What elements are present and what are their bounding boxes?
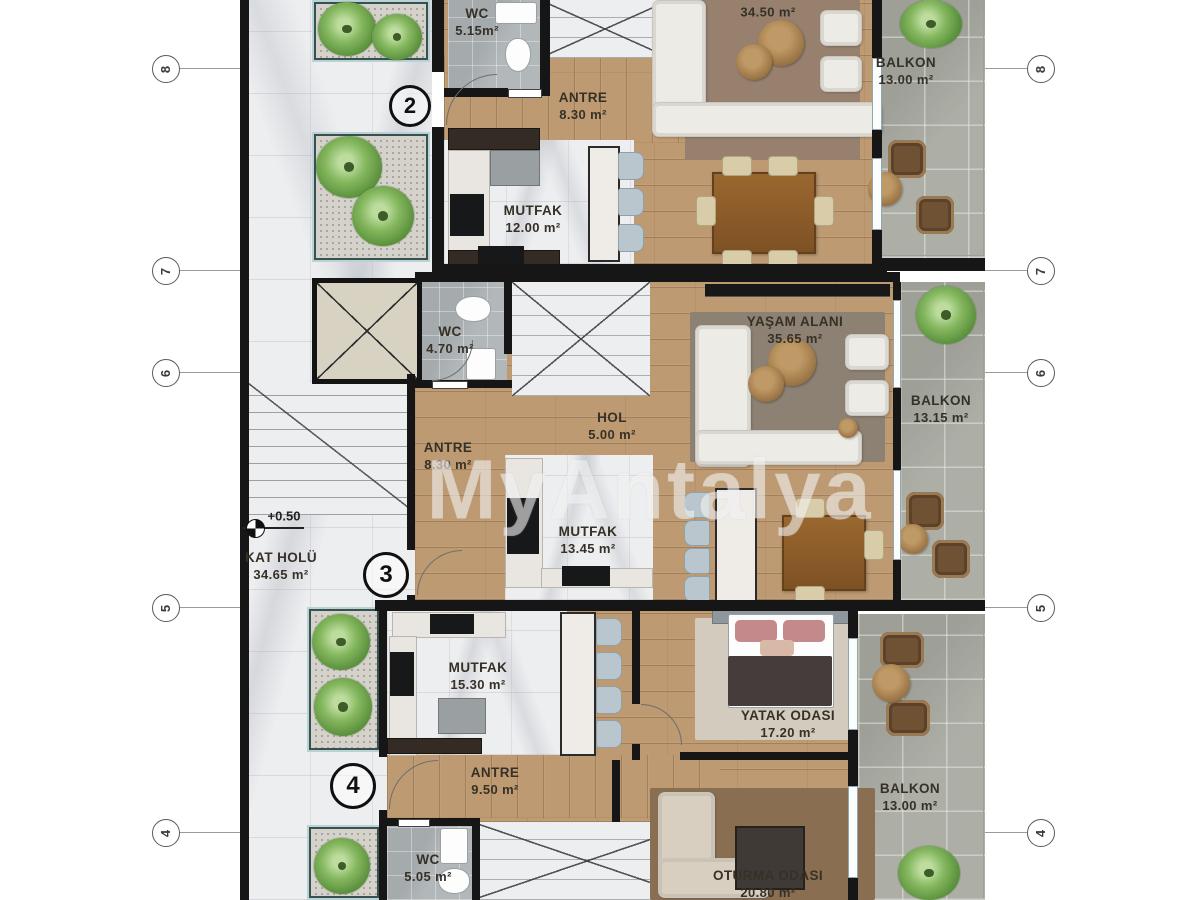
- door: [432, 381, 468, 389]
- wall: [504, 282, 512, 354]
- armchair: [820, 56, 862, 92]
- room-label-kat-holu: KAT HOLÜ34.65 m²: [245, 549, 317, 583]
- dining-chair: [768, 156, 798, 176]
- bed-pillow: [783, 620, 825, 642]
- plant: [352, 186, 414, 246]
- bar-chair: [618, 224, 644, 252]
- plant: [372, 14, 422, 60]
- bar-chair: [596, 686, 622, 714]
- room-label-antre-mid: ANTRE8.30 m²: [424, 439, 473, 473]
- wc-sink: [495, 2, 537, 24]
- elevator-shaft: [312, 278, 422, 384]
- wall: [612, 760, 620, 822]
- dining-chair: [696, 196, 716, 226]
- room-label-balkon-bottom: BALKON13.00 m²: [880, 780, 940, 814]
- bar-chair: [684, 576, 710, 602]
- grid-line: [178, 270, 240, 271]
- grid-line: [985, 832, 1027, 833]
- wall: [632, 744, 640, 760]
- plant: [916, 286, 976, 344]
- side-table: [838, 418, 858, 438]
- room-label-living-top: 34.50 m²: [740, 5, 795, 22]
- kitchen-appliance: [438, 698, 486, 734]
- room-label-oturma-odasi: OTURMA ODASI20.80 m²: [713, 867, 823, 900]
- door: [398, 819, 430, 827]
- bar-chair: [596, 652, 622, 680]
- room-label-mutfak-bottom: MUTFAK15.30 m²: [449, 659, 508, 693]
- plant: [318, 2, 376, 56]
- room-label-balkon-top: BALKON13.00 m²: [876, 54, 936, 88]
- sofa: [652, 102, 882, 137]
- bar-chair: [596, 720, 622, 748]
- unit2-stair: [540, 0, 670, 58]
- room-label-living-mid: YAŞAM ALANI35.65 m²: [747, 313, 843, 347]
- rattan-chair: [932, 540, 970, 578]
- bar-chair: [618, 188, 644, 216]
- bed-pillow: [760, 640, 794, 656]
- grid-marker-right-5: 5: [1027, 594, 1055, 622]
- coffee-table: [748, 366, 784, 402]
- wall: [472, 818, 480, 900]
- bed-pillow: [735, 620, 777, 642]
- level-marker-symbol: [246, 519, 265, 538]
- grid-marker-left-6: 6: [152, 359, 180, 387]
- unit-marker-2: 2: [389, 85, 431, 127]
- wall: [375, 600, 985, 611]
- wall: [432, 0, 444, 72]
- sofa: [695, 430, 862, 465]
- oven: [478, 246, 524, 266]
- grid-marker-left-5: 5: [152, 594, 180, 622]
- grid-line: [985, 270, 1027, 271]
- bar-chair: [618, 152, 644, 180]
- door: [508, 89, 542, 98]
- balcony-table: [872, 664, 910, 702]
- rattan-chair: [880, 632, 924, 668]
- grid-line: [178, 832, 240, 833]
- room-label-balkon-mid: BALKON13.15 m²: [911, 392, 971, 426]
- wall: [407, 374, 415, 550]
- plant: [312, 614, 370, 670]
- kitchen-island: [560, 612, 596, 756]
- grid-marker-left-7: 7: [152, 257, 180, 285]
- room-label-hol: HOL5.00 m²: [588, 409, 636, 443]
- bar-chair: [596, 618, 622, 646]
- kitchen-island: [588, 146, 620, 262]
- armchair: [820, 10, 862, 46]
- room-label-antre-bottom: ANTRE9.50 m²: [471, 764, 520, 798]
- grid-marker-right-7: 7: [1027, 257, 1055, 285]
- window: [893, 470, 901, 560]
- kitchen-appliance: [490, 150, 540, 186]
- room-label-wc-bottom: WC5.05 m²: [404, 851, 452, 885]
- cooktop: [430, 614, 474, 634]
- plant: [314, 678, 372, 736]
- grid-line: [985, 607, 1027, 608]
- unit-marker-4: 4: [330, 763, 376, 809]
- kitchen-appliance: [390, 652, 414, 696]
- grid-marker-right-6: 6: [1027, 359, 1055, 387]
- armchair: [845, 380, 889, 416]
- unit-marker-3: 3: [363, 552, 409, 598]
- kitchen-island: [715, 488, 757, 604]
- room-label-yatak-odasi: YATAK ODASI17.20 m²: [741, 707, 835, 741]
- corridor-stairs: [248, 383, 418, 515]
- room-label-mutfak-top: MUTFAK12.00 m²: [504, 202, 563, 236]
- grid-line: [985, 372, 1027, 373]
- window: [893, 300, 901, 388]
- dining-chair: [722, 156, 752, 176]
- plant: [900, 0, 962, 48]
- wall: [540, 0, 550, 96]
- fridge: [507, 498, 539, 554]
- room-label-wc-mid: WC4.70 m²: [426, 323, 474, 357]
- bar-chair: [684, 492, 710, 518]
- bar-chair: [684, 520, 710, 546]
- grid-line: [178, 372, 240, 373]
- wall: [432, 127, 444, 272]
- wall: [379, 810, 387, 900]
- cooktop: [562, 566, 610, 586]
- wall: [632, 608, 640, 704]
- grid-marker-right-4: 4: [1027, 819, 1055, 847]
- rattan-chair: [886, 700, 930, 736]
- floor-plan: WC5.15m² ANTRE8.30 m² 34.50 m² BALKON13.…: [0, 0, 1200, 900]
- dining-table: [712, 172, 816, 254]
- tv-unit: [705, 284, 890, 296]
- wall: [872, 258, 985, 271]
- unit3-hol-stair: [512, 282, 650, 396]
- dining-chair: [814, 196, 834, 226]
- window: [872, 158, 882, 230]
- armchair: [845, 334, 889, 370]
- wall: [415, 272, 900, 282]
- rattan-chair: [888, 140, 926, 178]
- grid-line: [985, 68, 1027, 69]
- kitchen-counter: [448, 128, 540, 150]
- wc-toilet: [455, 296, 491, 322]
- room-label-mutfak-mid: MUTFAK13.45 m²: [559, 523, 618, 557]
- bed-blanket: [728, 656, 832, 706]
- grid-marker-left-8: 8: [152, 55, 180, 83]
- grid-line: [178, 68, 240, 69]
- dining-chair: [864, 530, 884, 560]
- cooktop: [450, 194, 484, 236]
- grid-marker-right-8: 8: [1027, 55, 1055, 83]
- dining-table: [782, 515, 866, 591]
- wc-toilet: [505, 38, 531, 72]
- balcony-table: [898, 524, 928, 554]
- kitchen-counter: [387, 738, 482, 754]
- wall: [240, 0, 249, 900]
- dining-chair: [795, 498, 825, 518]
- plant: [898, 846, 960, 900]
- level-marker-value: +0.50: [268, 509, 301, 524]
- grid-line: [178, 607, 240, 608]
- room-label-wc-top: WC5.15m²: [455, 5, 499, 39]
- bar-chair: [684, 548, 710, 574]
- window: [848, 786, 858, 878]
- wall: [379, 608, 387, 757]
- coffee-table: [736, 44, 772, 80]
- grid-marker-left-4: 4: [152, 819, 180, 847]
- window: [848, 638, 858, 730]
- wall: [680, 752, 858, 760]
- plant: [314, 838, 370, 894]
- rattan-chair: [916, 196, 954, 234]
- room-label-antre-top: ANTRE8.30 m²: [559, 89, 608, 123]
